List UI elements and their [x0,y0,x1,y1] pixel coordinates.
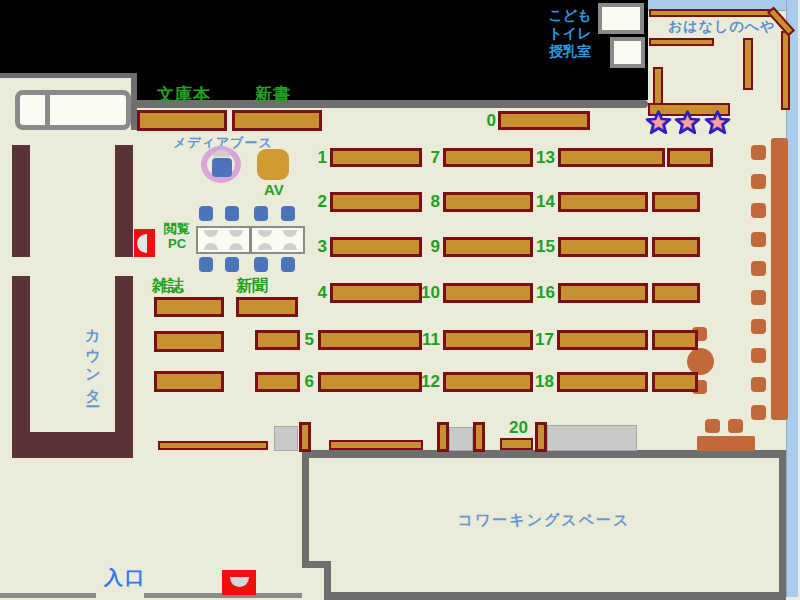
entrance-label: 入口 [104,565,146,591]
bookshelf [443,330,533,350]
bookshelf [158,441,268,450]
browsing-pc-line2: PC [158,236,196,251]
pc-seat-arc [283,243,297,250]
bookshelf [473,422,485,452]
shelf-number-label: 2 [299,192,327,212]
bookshelf [137,110,227,131]
bookshelf [443,237,533,257]
bookshelf [437,422,449,452]
staffroom-wall-top [0,73,137,78]
gray-table [274,426,298,451]
pc-seat-arc [229,243,243,250]
bookshelf [330,237,422,257]
browsing-pc-label: 閲覧 PC [158,221,196,251]
shelf-number-label: 10 [412,283,440,303]
pc-seat-arc [283,230,297,237]
wood-chair [751,405,766,420]
paperbacks-label: 文庫本 [157,83,211,106]
reading-bench-right [771,138,788,420]
counter-bar [12,145,30,257]
star-icon [645,109,672,136]
nursing-room-label: 授乳室 [542,42,598,60]
shelf-number-label: 17 [526,330,554,350]
counter-bar [12,276,30,432]
bookshelf [236,297,298,317]
gate-sensor-icon [230,577,249,587]
kids-room-box-1 [598,3,644,34]
bookshelf [557,330,648,350]
av-label: AV [264,181,284,198]
security-gate-entrance [222,570,256,595]
gray-table [449,427,473,451]
pc-seat-arc [258,230,272,237]
coworking-space-label: コワーキングスペース [302,511,786,530]
wood-chair [751,319,766,334]
gray-table [547,425,637,451]
library-floor-map: こども トイレ 授乳室 文庫本 新書 おはなしのへや メディアブース AV 閲覧… [0,0,800,600]
wood-chair [728,419,743,433]
star-icon [674,109,701,136]
bookshelf [329,440,423,450]
wood-chair [751,290,766,305]
pc-table-2 [250,226,305,254]
shelf-number-label: 16 [527,283,555,303]
bookshelf [318,330,422,350]
bookshelf [498,111,590,130]
magazines-label: 雑誌 [152,276,184,297]
pc-chair [225,206,239,221]
bookshelf [330,192,422,212]
bookshelf [652,330,698,350]
bookshelf [558,148,665,167]
kids-label: こども [542,6,598,24]
gate-sensor-icon [137,234,147,253]
shelf-number-label: 13 [527,148,555,167]
bookshelf [443,192,533,212]
coworking-wall-bottom [324,592,786,600]
round-table [687,348,714,375]
bookshelf [558,192,648,212]
bookshelf [443,148,533,167]
kids-area-label: こども トイレ 授乳室 [542,6,598,60]
bookshelf [299,422,311,452]
wood-chair [751,145,766,160]
bookshelf [443,283,533,303]
bookshelf [649,38,714,46]
bookshelf [652,283,700,303]
shelf-number-label: 14 [527,192,555,212]
shelf-number-label: 9 [412,237,440,257]
pc-chair [199,206,213,221]
shelf-number-label: 6 [286,372,314,392]
bookshelf [535,422,547,452]
bookshelf [652,237,700,257]
shelf-number-label: 12 [412,372,440,392]
shelf-number-label: 5 [286,330,314,350]
shelf-number-label: 20 [500,419,528,436]
bookshelf [500,438,533,450]
pc-seat-arc [258,243,272,250]
kids-room-box-2 [610,37,645,68]
bookshelf [652,372,698,392]
bookshelf [652,192,700,212]
pc-chair [254,257,268,272]
bookshelf [154,331,224,352]
bench-bottom [697,436,755,451]
newspapers-label: 新聞 [236,276,268,297]
shelf-number-label: 3 [299,237,327,257]
bookshelf [154,371,224,392]
bookshelf [781,31,790,110]
star-icon [704,109,731,136]
wood-chair [751,203,766,218]
wood-chair [751,174,766,189]
counter-bar [12,432,133,458]
bookshelf [330,148,422,167]
security-gate-counter [134,229,155,257]
shelf-number-label: 1 [299,148,327,167]
media-booth-monitor [213,150,230,157]
pc-seat-arc [229,230,243,237]
bookshelf [154,297,224,317]
storytime-room-label: おはなしのへや [668,18,775,36]
wood-chair [705,419,720,433]
shelf-number-label: 11 [412,330,440,350]
bookshelf [330,283,422,303]
pc-chair [281,257,295,272]
pc-chair [199,257,213,272]
coworking-wall-left [302,450,309,568]
wood-chair [751,232,766,247]
shelf-number-label: 8 [412,192,440,212]
bookshelf [557,372,648,392]
pc-chair [281,206,295,221]
staff-desk-divider [45,92,50,128]
bookshelf [443,372,533,392]
pc-chair [225,257,239,272]
bookshelf [743,38,753,90]
shelf-number-label: 15 [527,237,555,257]
media-booth-seat [212,158,232,177]
browsing-pc-line1: 閲覧 [158,221,196,236]
av-seat [257,149,289,180]
wood-chair [751,348,766,363]
pc-table-1 [196,226,251,254]
bookshelf [649,9,772,17]
shelf-number-label: 18 [526,372,554,392]
outer-wall-bottom-left [0,593,96,598]
bookshelf [318,372,422,392]
shelf-number-label: 0 [468,111,496,130]
pc-chair [254,206,268,221]
shelf-number-label: 4 [299,283,327,303]
bookshelf [558,283,648,303]
bookshelf [667,148,713,167]
shelf-number-label: 7 [412,148,440,167]
new-books-label: 新書 [255,83,291,106]
counter-bar [115,276,133,432]
staff-desk [15,90,131,130]
wood-chair [751,261,766,276]
bookshelf [232,110,322,131]
counter-label: カウンター [83,318,102,401]
pc-seat-arc [204,230,218,237]
bookshelf [558,237,648,257]
wood-chair [751,377,766,392]
counter-bar [115,145,133,257]
pc-seat-arc [204,243,218,250]
toilet-label: トイレ [542,24,598,42]
